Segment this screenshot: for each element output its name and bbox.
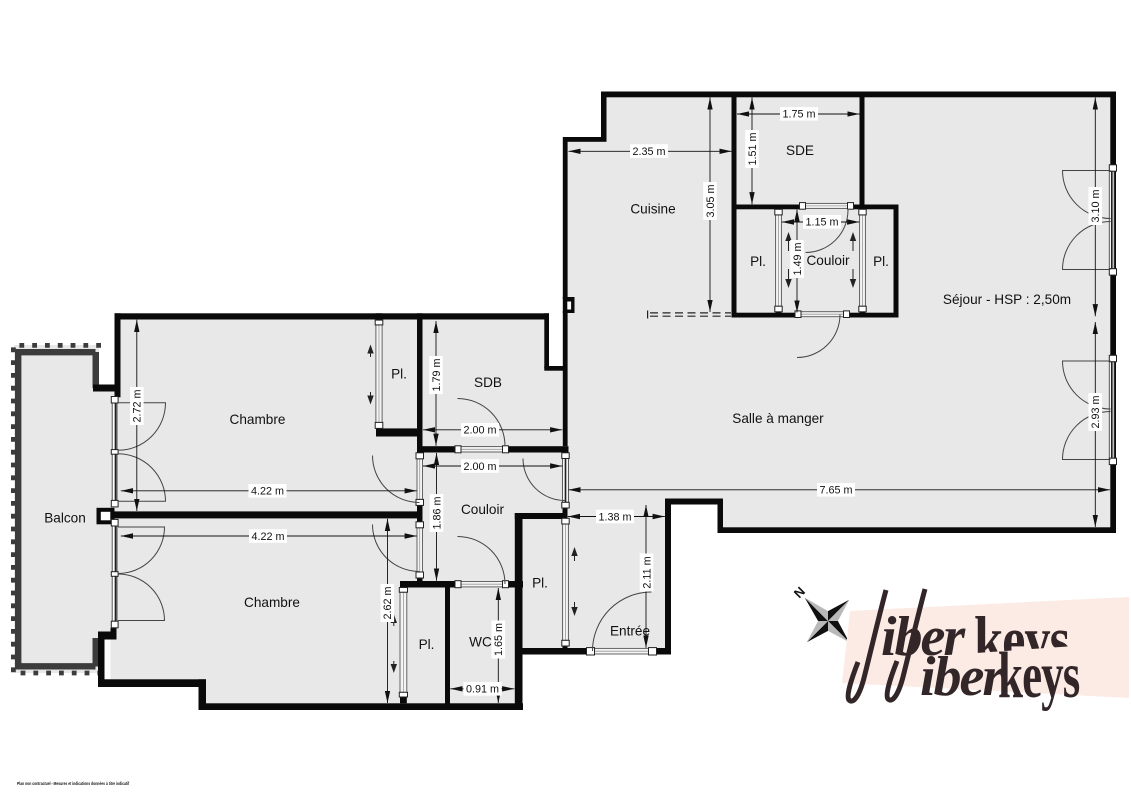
svg-text:Pl.: Pl. [391,367,407,382]
svg-text:3.05 m: 3.05 m [705,184,717,217]
svg-text:Pl.: Pl. [532,576,548,591]
svg-text:1.49 m: 1.49 m [792,242,804,275]
svg-text:1.38 m: 1.38 m [598,511,631,523]
svg-text:Couloir: Couloir [806,253,850,268]
svg-text:2.72 m: 2.72 m [132,389,144,422]
svg-text:3.10 m: 3.10 m [1090,189,1102,222]
svg-text:iber: iber [920,646,1005,708]
svg-text:Salle à manger: Salle à manger [732,411,824,426]
svg-text:Plan non contractuel - Mesures: Plan non contractuel - Mesures et indica… [17,780,130,786]
svg-text:4.22 m: 4.22 m [251,486,284,498]
svg-text:Chambre: Chambre [244,595,300,610]
svg-text:Chambre: Chambre [230,412,286,427]
svg-text:Entrée: Entrée [610,624,650,639]
svg-text:2.11 m: 2.11 m [641,556,653,588]
svg-text:SDB: SDB [474,375,502,390]
svg-text:1.51 m: 1.51 m [747,132,759,165]
svg-text:7.65 m: 7.65 m [819,485,852,497]
svg-text:Cuisine: Cuisine [630,202,675,217]
svg-text:1.75 m: 1.75 m [782,109,815,121]
svg-text:2.93 m: 2.93 m [1090,395,1102,428]
svg-text:4.22 m: 4.22 m [251,531,284,543]
svg-text:0.91 m: 0.91 m [466,684,499,696]
svg-text:1.65 m: 1.65 m [493,623,505,656]
svg-text:2.62 m: 2.62 m [382,586,394,619]
svg-text:1.15 m: 1.15 m [805,217,838,229]
svg-text:SDE: SDE [786,143,814,158]
svg-text:Couloir: Couloir [461,502,505,517]
svg-text:Séjour - HSP : 2,50m: Séjour - HSP : 2,50m [943,292,1071,307]
svg-text:Pl.: Pl. [419,637,435,652]
svg-text:Pl.: Pl. [750,254,766,269]
svg-text:keys: keys [998,640,1080,712]
svg-text:2.00 m: 2.00 m [463,461,496,473]
svg-text:1.79 m: 1.79 m [431,358,443,391]
svg-text:Balcon: Balcon [44,511,86,526]
svg-text:2.35 m: 2.35 m [632,146,665,158]
svg-text:2.00 m: 2.00 m [463,425,496,437]
svg-text:Pl.: Pl. [873,254,889,269]
svg-text:WC: WC [469,635,492,650]
svg-text:1.86 m: 1.86 m [431,496,443,529]
